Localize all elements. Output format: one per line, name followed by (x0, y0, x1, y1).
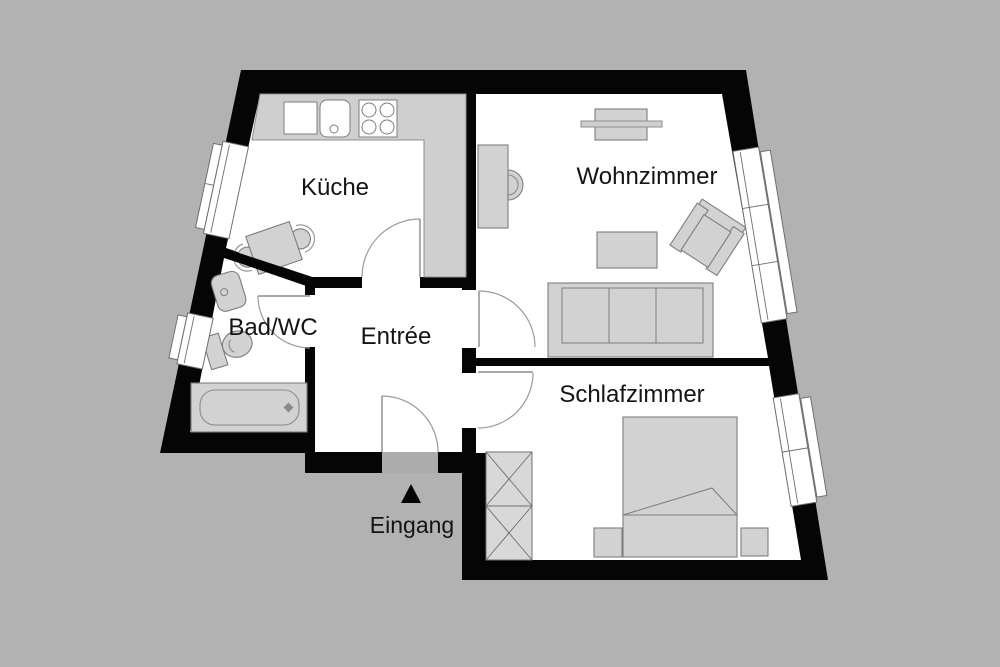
schlafzimmer-door-opening (462, 373, 476, 428)
wardrobe-icon (486, 452, 532, 560)
bathtub-icon (191, 383, 307, 432)
wohnzimmer-door-opening (462, 290, 476, 348)
wohnzimmer-label: Wohnzimmer (577, 163, 718, 190)
sofa-icon (548, 283, 713, 357)
entree-label: Entrée (361, 323, 432, 350)
sink-icon (284, 100, 350, 137)
kueche-door-opening (362, 276, 420, 289)
coffee-table-icon (597, 232, 657, 268)
floor-plan-svg: Küche Wohnzimmer Bad/WC Entrée Schlafzim… (0, 0, 1000, 667)
eingang-label: Eingang (370, 512, 454, 538)
nightstand-icon (741, 528, 768, 556)
desk-icon (478, 145, 508, 228)
schlafzimmer-label: Schlafzimmer (559, 381, 704, 408)
kueche-label: Küche (301, 174, 369, 201)
stove-icon (359, 100, 397, 137)
bad-label: Bad/WC (228, 314, 317, 341)
double-bed-icon (623, 417, 737, 557)
entrance-threshold (382, 452, 438, 473)
room-entree-floor (315, 288, 462, 452)
nightstand-icon (594, 528, 622, 557)
floor-plan-page: Küche Wohnzimmer Bad/WC Entrée Schlafzim… (0, 0, 1000, 667)
